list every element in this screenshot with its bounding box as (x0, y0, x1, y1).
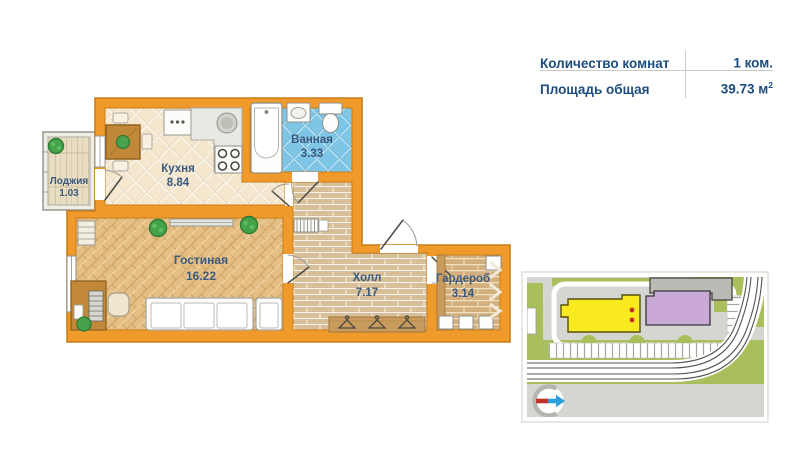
sofa-icon (146, 298, 282, 330)
building-purple (646, 291, 710, 325)
total-area-value-text: 39.73 м (721, 82, 769, 97)
door-entrance (380, 220, 418, 253)
info-row-total-area: Площадь общая 39.73 м2 (540, 71, 773, 96)
room-label-wardrobe-area: 3.14 (452, 288, 475, 300)
drawer-box (439, 316, 453, 329)
plant-icon (241, 217, 258, 234)
room-label-hall-area: 7.17 (356, 287, 378, 299)
room-label-wardrobe-name: Гардероб (436, 273, 490, 285)
shelf-icon (78, 221, 95, 245)
room-label-loggia-name: Лоджия (50, 176, 89, 187)
office-chair-icon (108, 293, 129, 316)
window-kitchen-loggia (95, 136, 105, 167)
parking-row (549, 343, 727, 358)
rooms-count-value-text: 1 ком. (733, 56, 773, 71)
plant-icon (117, 136, 130, 149)
total-area-value: 39.73 м2 (721, 74, 773, 101)
info-panel: Количество комнат 1 ком. Площадь общая 3… (540, 48, 773, 96)
info-panel-divider (685, 51, 686, 98)
rooms-count-value: 1 ком. (733, 48, 773, 75)
radiator-icon (294, 219, 328, 232)
room-label-kitchen-name: Кухня (161, 163, 195, 175)
marker-dot (630, 308, 635, 313)
marker-dot (630, 318, 635, 323)
bathtub-icon (251, 103, 282, 173)
info-row-rooms-count: Количество комнат 1 ком. (540, 48, 773, 71)
total-area-sup: 2 (768, 80, 773, 90)
room-label-bath-name: Ванная (291, 134, 333, 146)
room-label-hall-name: Холл (353, 272, 382, 284)
rooms-count-label: Количество комнат (540, 53, 669, 75)
tv-shelf-icon (170, 219, 233, 226)
apartment-plan-page: Лоджия 1.03 Кухня 8.84 Ванная 3.33 Гости… (0, 0, 800, 461)
room-label-living-area: 16.22 (186, 269, 216, 283)
plant-icon (150, 220, 167, 237)
plant-icon (77, 317, 91, 331)
building-highlighted (561, 295, 640, 332)
sink-icon (217, 113, 237, 133)
building-fragment (527, 308, 536, 334)
room-label-living-name: Гостиная (174, 253, 228, 267)
plant-icon (49, 139, 64, 154)
stove-icon (215, 146, 242, 173)
room-label-loggia-area: 1.03 (59, 188, 79, 199)
drawer-box (459, 316, 473, 329)
site-map-thumbnail[interactable] (522, 272, 768, 422)
total-area-label: Площадь общая (540, 79, 650, 101)
site-map-content (527, 277, 764, 417)
room-label-kitchen-area: 8.84 (167, 177, 190, 189)
room-label-bath-area: 3.33 (301, 148, 323, 160)
hall-furniture (329, 316, 425, 332)
washbasin-icon (287, 103, 310, 122)
